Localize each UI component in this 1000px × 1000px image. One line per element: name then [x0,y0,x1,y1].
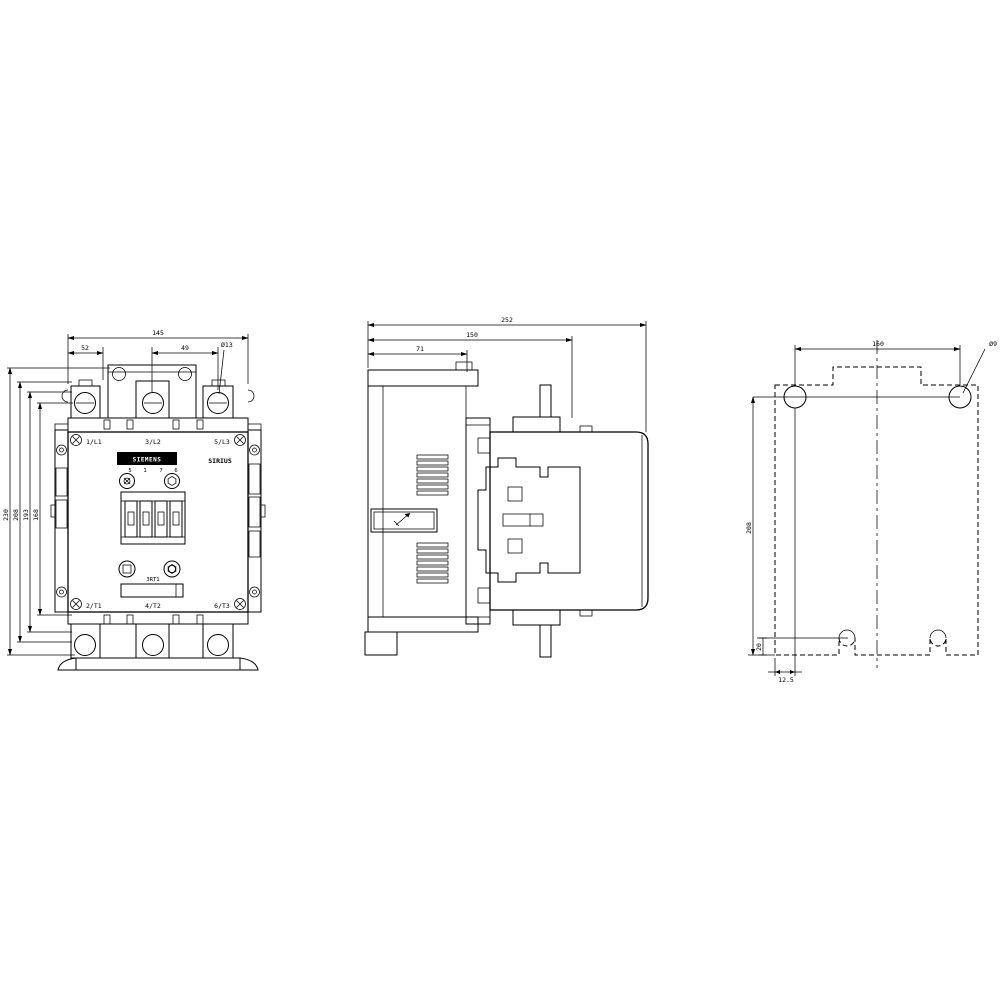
coil-connector-block [121,492,185,544]
mounting-slot-right [930,630,946,638]
coil-screw-upper-right-icon [165,474,180,489]
dim-front-height-1: 230 [2,509,10,521]
coil-pin-4: 6 [174,468,177,474]
terminal-label-5L3: 5/L3 [214,438,230,446]
dim-side-depth-overall: 252 [501,316,513,324]
side-dimensions: 252 150 71 [368,316,646,432]
vent-slats-upper [417,455,448,495]
dim-plan-hole-spacing-v: 208 [745,522,753,534]
brand-text: SIEMENS [133,457,162,464]
plan-outline [753,340,978,668]
front-top-terminals [62,365,254,432]
drilling-plan: 160 Ø9 208 20 12.5 [745,340,997,684]
terminal-label-2T1: 2/T1 [86,602,102,610]
screw-hatched-left [113,368,126,381]
coil-pin-1: 5 [128,468,131,474]
dim-side-depth-flange: 71 [416,345,424,353]
front-bottom-terminals [58,612,258,670]
plan-dimensions: 160 Ø9 208 20 12.5 [745,340,997,684]
terminal-label-3L2: 3/L2 [145,438,161,446]
screw-hatched-right [179,368,192,381]
dim-front-height-2: 208 [12,509,20,521]
contactor-dimension-drawing: 145 52 49 Ø13 230 208 193 168 [0,0,1000,1000]
side-contactor-body [466,385,648,657]
mounting-foot-left [58,658,76,670]
front-view: 145 52 49 Ø13 230 208 193 168 [2,329,265,670]
terminal-lug-L2 [136,381,169,418]
side-terminal-top [513,417,560,432]
device-footprint-outline [775,367,978,655]
series-text: SIRIUS [208,457,232,465]
aux-contact-block-icon [56,468,67,496]
indicator-arrow-icon [394,513,410,526]
technical-drawing-page: 145 52 49 Ø13 230 208 193 168 [0,0,1000,1000]
terminal-lug-T2 [136,624,169,658]
coil-screw-lower-left-icon [119,561,135,577]
mounting-slot-left [839,630,855,638]
terminal-label-1L1: 1/L1 [86,438,102,446]
dim-front-height-4: 168 [32,509,40,521]
dim-front-pitch-left: 52 [81,344,89,352]
dim-side-depth-rear: 150 [466,331,478,339]
vent-slats-lower [417,543,448,583]
dim-plan-slot-height: 20 [755,643,763,651]
terminal-hole-T1 [75,635,96,656]
coil-pin-2: 1 [143,468,146,474]
terminal-label-6T3: 6/T3 [214,602,230,610]
coil-pin-3: 7 [159,468,162,474]
terminal-hole-T3 [208,635,229,656]
side-aux-profile [478,458,580,582]
terminal-lug-T3 [203,624,233,658]
dim-front-overall-width: 145 [152,329,164,337]
dim-plan-hole-spacing-h: 160 [872,340,884,348]
nameplate [121,584,183,597]
dim-plan-hole-callout: Ø9 [989,340,997,348]
mounting-foot-right [240,658,258,670]
terminal-hole-T2 [143,635,164,656]
dim-front-height-3: 193 [22,509,30,521]
front-body: 1/L1 3/L2 5/L3 2/T1 4/T2 6/T3 SIEMENS SI… [68,432,248,612]
position-indicator-window [371,509,437,532]
coil-screw-upper-left-icon [120,474,135,489]
dim-plan-edge-offset: 12.5 [778,676,794,684]
dim-front-terminal-hole: Ø13 [221,341,233,349]
dim-front-pitch-right: 49 [181,344,189,352]
model-text: 3RT1 [146,577,159,583]
terminal-label-4T2: 4/T2 [145,602,161,610]
coil-screw-lower-right-icon [164,561,180,577]
side-terminal-bottom [513,610,560,625]
side-view: 252 150 71 [365,316,648,657]
